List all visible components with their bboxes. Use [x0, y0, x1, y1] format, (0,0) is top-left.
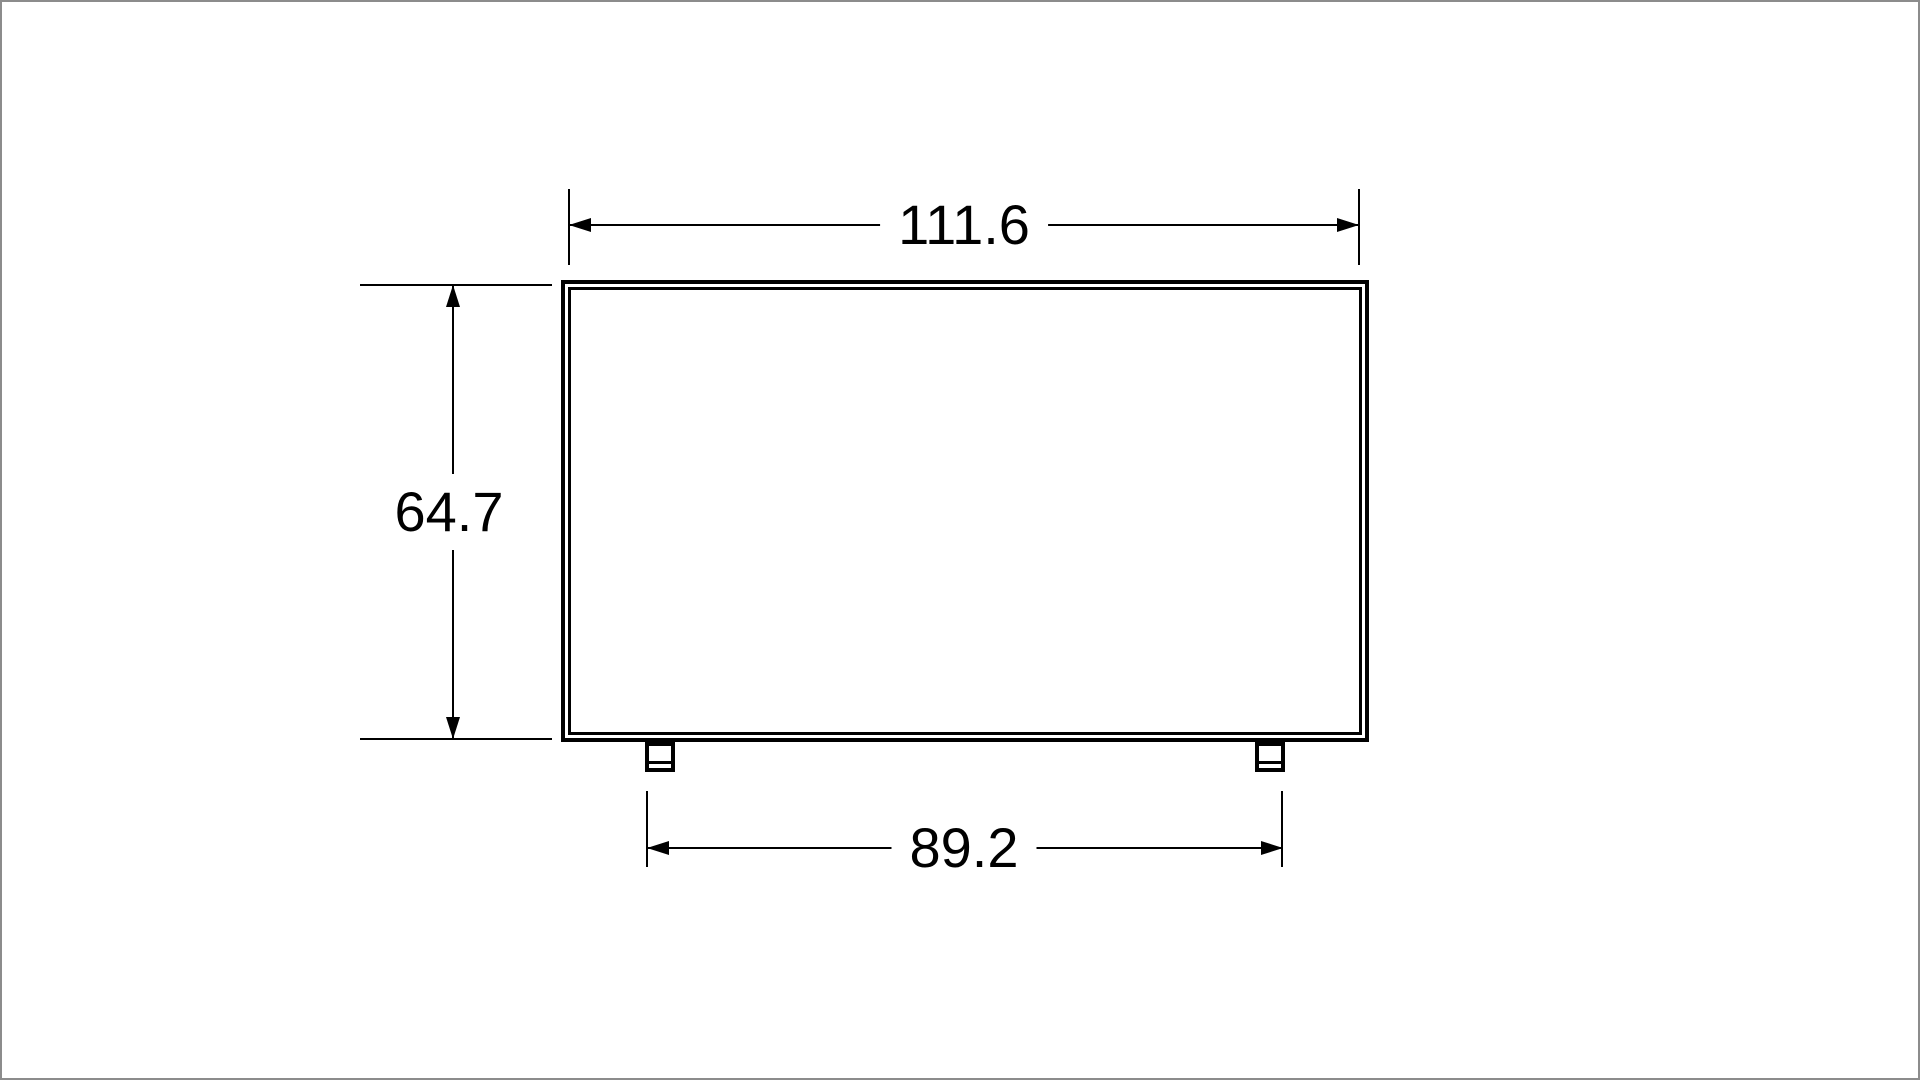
stand-width-arrowhead-right [1261, 841, 1283, 855]
stand-foot-left-pad-line [649, 761, 671, 764]
stand-foot-right-pad-line [1259, 761, 1281, 764]
width-dimension-label: 111.6 [880, 197, 1048, 253]
stand-foot-left [645, 742, 675, 772]
width-arrowhead-right [1337, 218, 1359, 232]
stand-width-arrowhead-left [647, 841, 669, 855]
panel-inner-outline [568, 287, 1362, 735]
drawing-canvas: 111.6 64.7 89.2 [0, 0, 1920, 1080]
height-arrowhead-top [446, 285, 460, 307]
stand-width-dimension-label: 89.2 [892, 820, 1037, 876]
stand-foot-right [1255, 742, 1285, 772]
width-arrowhead-left [569, 218, 591, 232]
stand-width-extension-line-right [1281, 791, 1283, 867]
height-arrowhead-bottom [446, 717, 460, 739]
stand-width-extension-line-left [646, 791, 648, 867]
height-dimension-label: 64.7 [387, 474, 512, 550]
panel-outline [561, 280, 1369, 742]
